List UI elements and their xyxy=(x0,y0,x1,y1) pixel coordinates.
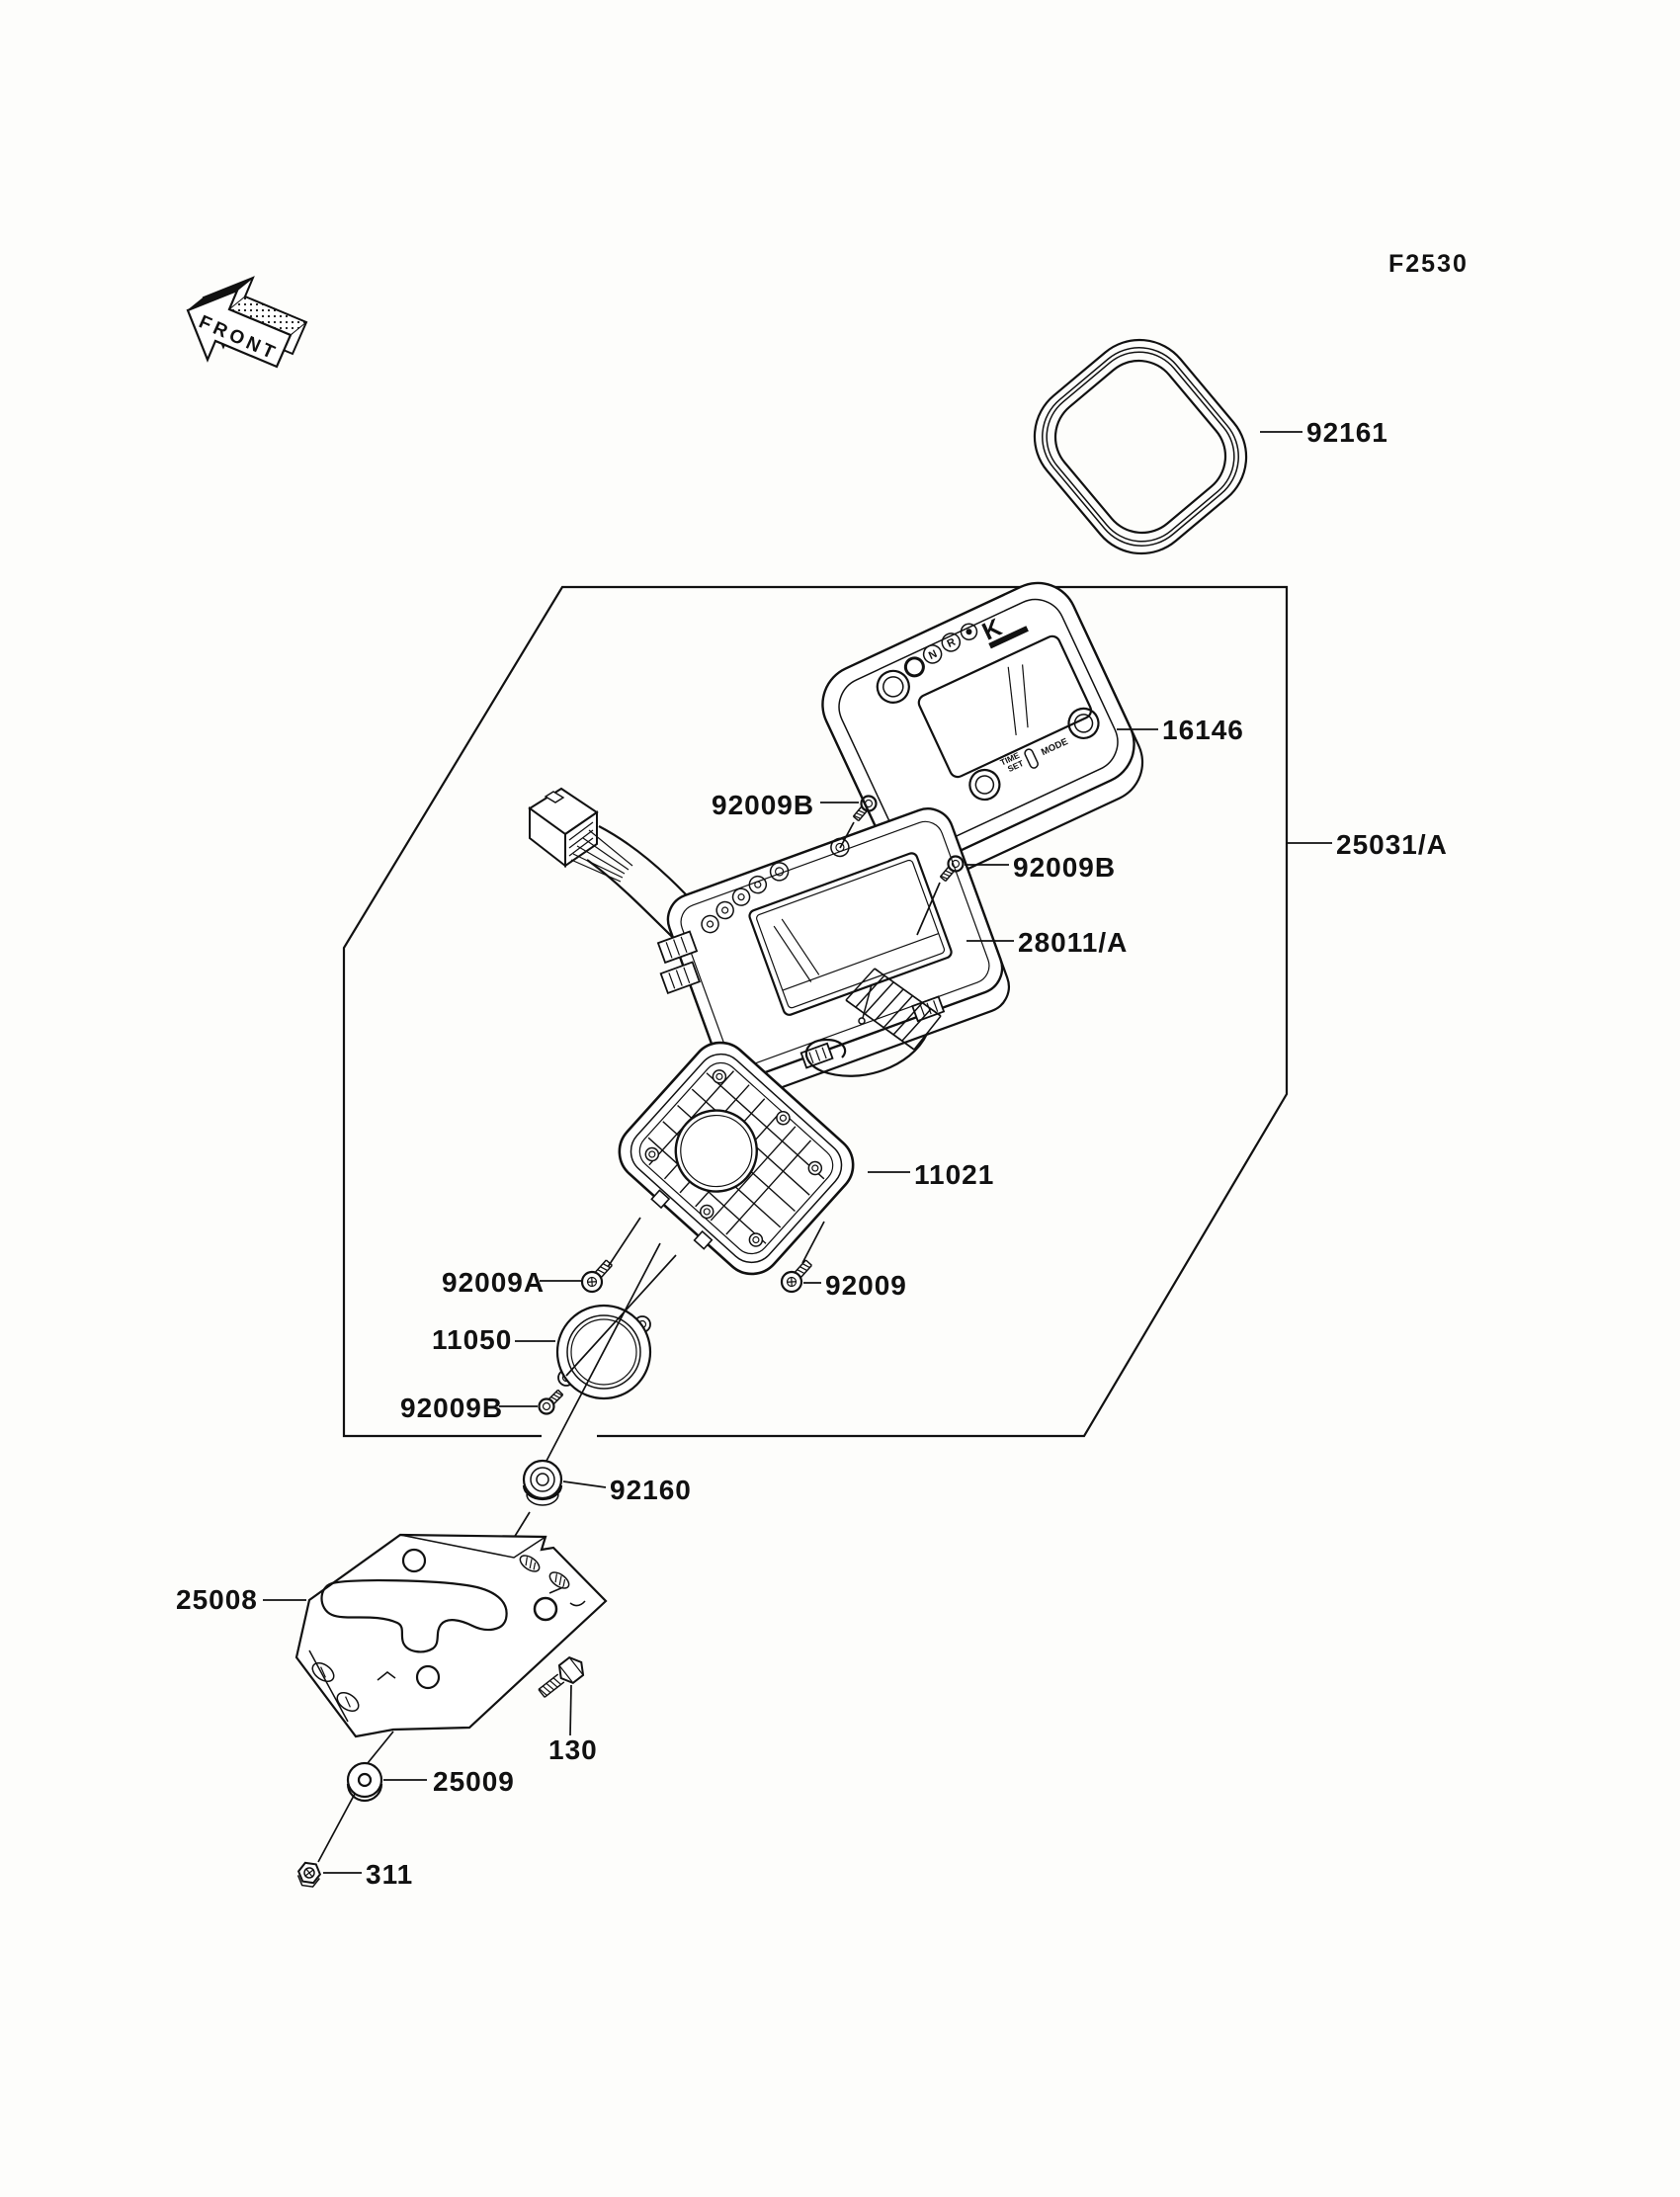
part-label-92009: 92009 xyxy=(825,1270,907,1301)
part-meter-assembly-25031: 25031/A xyxy=(1287,829,1448,860)
part-label-130: 130 xyxy=(548,1734,598,1765)
part-bolt-130: 130 xyxy=(535,1653,598,1765)
diagram-code: F2530 xyxy=(1388,250,1469,278)
part-label-92009B-lower: 92009B xyxy=(400,1393,503,1423)
part-washer-25009: 25009 xyxy=(348,1732,515,1801)
part-label-92009A: 92009A xyxy=(442,1267,545,1298)
part-label-16146: 16146 xyxy=(1162,715,1244,745)
part-label-11021: 11021 xyxy=(914,1159,994,1190)
part-cover-ring-92161: 92161 xyxy=(1013,318,1388,575)
parts-diagram: F2530 FRONT 92161 xyxy=(0,0,1680,2197)
part-label-92009B-right: 92009B xyxy=(1013,852,1116,883)
part-bracket-25008: 25008 xyxy=(176,1535,606,1736)
part-label-92160: 92160 xyxy=(610,1475,692,1505)
part-label-11050: 11050 xyxy=(432,1324,512,1355)
part-label-311: 311 xyxy=(366,1859,413,1890)
part-label-92009B-top: 92009B xyxy=(712,790,814,820)
part-screw-92009a: 92009A xyxy=(442,1218,640,1298)
parts-diagram-page: F2530 FRONT 92161 xyxy=(0,0,1680,2197)
part-label-28011A: 28011/A xyxy=(1018,927,1128,958)
part-screw-92009b-lower: 92009B xyxy=(400,1388,565,1423)
part-label-25009: 25009 xyxy=(433,1766,515,1797)
part-nut-311: 311 xyxy=(296,1794,413,1890)
part-label-25008: 25008 xyxy=(176,1584,258,1615)
part-label-92161: 92161 xyxy=(1306,417,1388,448)
part-damper-92160: 92160 xyxy=(522,1461,692,1505)
front-arrow: FRONT xyxy=(188,278,306,367)
part-label-25031A: 25031/A xyxy=(1336,829,1448,860)
